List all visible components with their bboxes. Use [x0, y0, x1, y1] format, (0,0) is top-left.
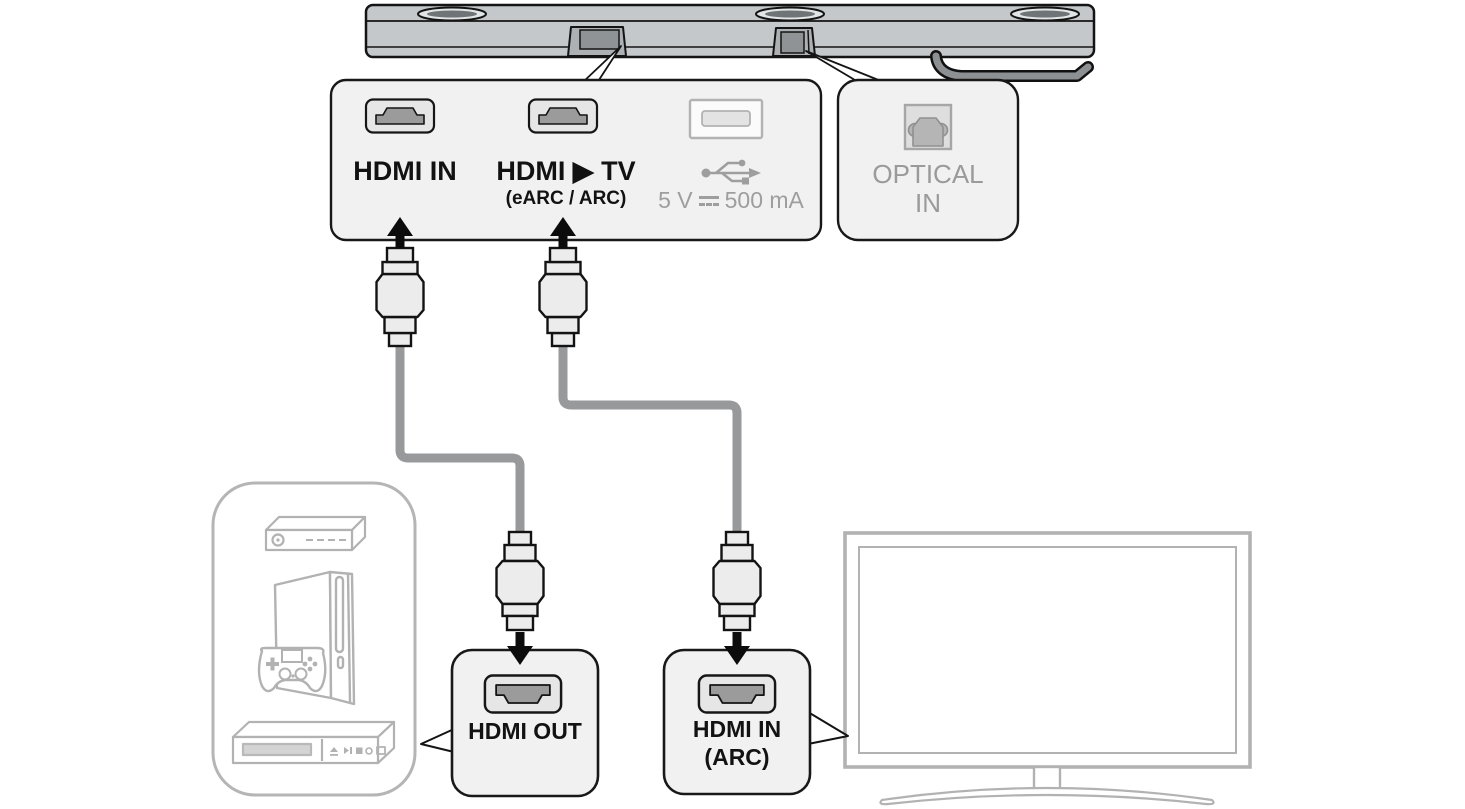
disc-player-icon	[233, 722, 394, 763]
hdmi-in-arc-label-line1: HDMI IN	[664, 715, 810, 743]
hdmi-plug-icon	[377, 248, 424, 346]
optical-label-line2: IN	[838, 189, 1018, 218]
hdmi-port-icon	[485, 676, 561, 713]
usb-trident-icon	[700, 158, 762, 186]
connection-diagram: HDMI IN HDMI ▶ TV (eARC / ARC) 5 V 500 m…	[0, 0, 1465, 809]
soundbar-screw-hole-icon	[1011, 8, 1079, 21]
usb-power-label-group: 5 V 500 mA	[640, 158, 822, 214]
diagram-artwork	[0, 0, 1465, 809]
tv-icon	[845, 533, 1250, 804]
hdmi-plug-icon	[540, 248, 587, 346]
optical-label-line1: OPTICAL	[838, 160, 1018, 189]
callout-tail	[421, 729, 454, 752]
hdmi-in-arc-label-line2: (ARC)	[664, 743, 810, 771]
hdmi-in-port-label: HDMI IN	[330, 156, 480, 187]
hdmi-out-label: HDMI OUT	[452, 718, 598, 745]
hdmi-port-icon	[699, 676, 775, 713]
hdmi-cable	[400, 344, 737, 538]
usb-current-label: 500 mA	[725, 187, 804, 214]
set-top-box-icon	[266, 517, 365, 550]
soundbar-screw-hole-icon	[756, 8, 824, 21]
hdmi-port-icon	[529, 100, 597, 133]
usb-volt-label: 5 V	[658, 187, 693, 214]
hdmi-in-arc-label: HDMI IN (ARC)	[664, 715, 810, 771]
power-cable-icon	[936, 56, 1088, 76]
callout-tail	[808, 712, 848, 744]
hdmi-tv-port-label: HDMI ▶ TV	[472, 156, 660, 187]
soundbar-screw-hole-icon	[418, 8, 486, 21]
optical-in-label: OPTICAL IN	[838, 160, 1018, 218]
hdmi-plug-icon	[497, 532, 544, 630]
usb-power-rating: 5 V 500 mA	[658, 187, 804, 214]
hdmi-port-icon	[366, 100, 434, 133]
dc-power-icon	[699, 196, 719, 206]
usb-port-icon	[690, 100, 762, 138]
soundbar-icon	[366, 5, 1094, 57]
earc-arc-sublabel: (eARC / ARC)	[472, 188, 660, 210]
hdmi-plug-icon	[714, 532, 761, 630]
optical-port-icon	[905, 105, 951, 149]
